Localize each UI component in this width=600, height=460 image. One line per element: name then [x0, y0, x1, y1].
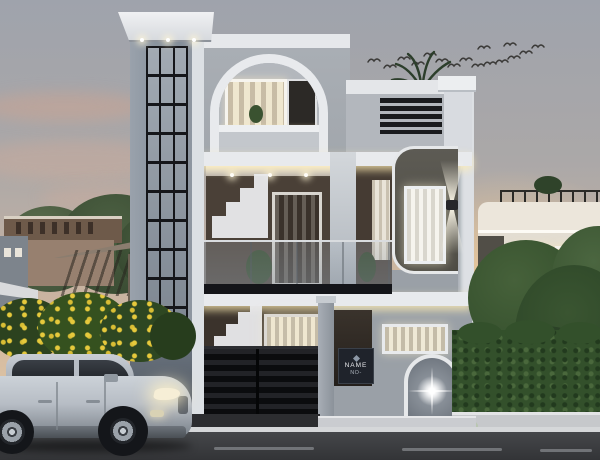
- car-door-handle: [86, 400, 100, 403]
- left-edge-window: [15, 248, 22, 257]
- terrace-window-dark: [287, 79, 317, 127]
- arch-terrace-opening: [219, 63, 319, 154]
- gate-post: [318, 300, 334, 418]
- left-house-vent-slats: [16, 222, 100, 234]
- car-foglight: [150, 410, 164, 417]
- terrace-ledge-led: [219, 125, 319, 132]
- wall-sconce: [446, 200, 458, 210]
- gate-center-divider: [256, 349, 259, 417]
- roof-plant: [534, 176, 562, 194]
- blind-window-lit: [382, 324, 448, 354]
- left-edge-window: [4, 248, 11, 257]
- hedge-top: [505, 320, 555, 344]
- ceiling-downlight: [268, 173, 272, 177]
- tower-white-edge: [192, 42, 204, 418]
- ceiling-downlight: [304, 173, 308, 177]
- lane-marking: [540, 449, 592, 452]
- stair-steps: [212, 174, 268, 238]
- architectural-render-scene: NAME NO-: [0, 0, 600, 460]
- hedge-top: [458, 322, 502, 344]
- cornice-downlight: [140, 38, 144, 42]
- hedge-top: [558, 322, 600, 344]
- right-house-parapet: [478, 202, 600, 232]
- lane-marking: [402, 448, 502, 451]
- main-gate-slats: [198, 346, 320, 414]
- nameplate-title: NAME: [345, 362, 368, 369]
- pillar-cap: [438, 76, 476, 92]
- nameplate-number: NO-: [350, 370, 362, 376]
- tower-glass-feature: [146, 46, 188, 344]
- car-wheel-rim: [0, 419, 25, 445]
- cornice-downlight: [166, 38, 170, 42]
- car-wheel-rim: [110, 418, 136, 444]
- parked-suv: [0, 348, 192, 454]
- louver-fence: [380, 98, 442, 134]
- car-door-handle: [38, 400, 52, 403]
- staircase-icon: [212, 174, 268, 238]
- car-wheel: [98, 406, 148, 456]
- blind-window-lit: [404, 186, 446, 264]
- cloud: [0, 92, 150, 122]
- car-grille: [178, 396, 188, 414]
- car-mirror: [104, 374, 118, 382]
- railing-base: [204, 284, 392, 294]
- cornice-downlight: [192, 38, 196, 42]
- terrace-pillar: [444, 88, 472, 154]
- terrace-plant: [249, 105, 263, 123]
- star-light-ray: [431, 367, 433, 415]
- nameplate-crest-icon: [352, 355, 359, 362]
- car-door-seam: [56, 382, 58, 430]
- house-nameplate: NAME NO-: [338, 348, 374, 384]
- staircase-icon: [206, 300, 262, 352]
- lane-marking: [214, 447, 314, 450]
- terrace-parapet: [219, 132, 319, 154]
- gate-post-cap: [316, 296, 336, 303]
- stair-steps: [214, 300, 262, 352]
